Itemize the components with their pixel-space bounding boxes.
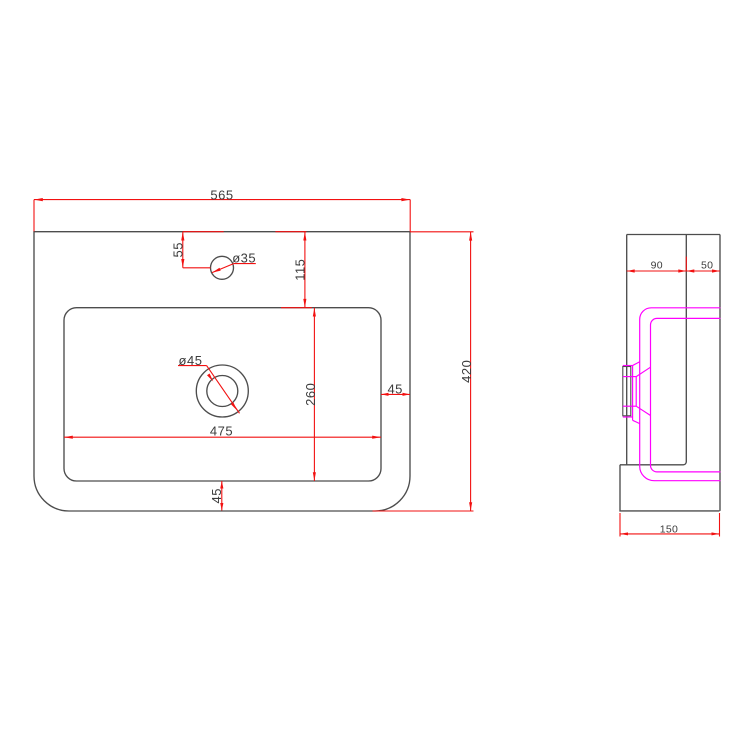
svg-text:260: 260 [303, 383, 318, 406]
svg-text:90: 90 [651, 260, 663, 272]
svg-text:50: 50 [701, 260, 713, 272]
svg-text:475: 475 [210, 423, 233, 438]
svg-text:420: 420 [459, 360, 474, 383]
svg-text:55: 55 [171, 242, 186, 257]
svg-text:45: 45 [387, 381, 402, 396]
svg-text:45: 45 [209, 488, 224, 503]
svg-text:115: 115 [293, 259, 308, 281]
svg-text:ø35: ø35 [232, 251, 256, 266]
svg-text:565: 565 [210, 187, 233, 202]
svg-text:ø45: ø45 [179, 353, 203, 368]
svg-text:150: 150 [660, 524, 678, 536]
